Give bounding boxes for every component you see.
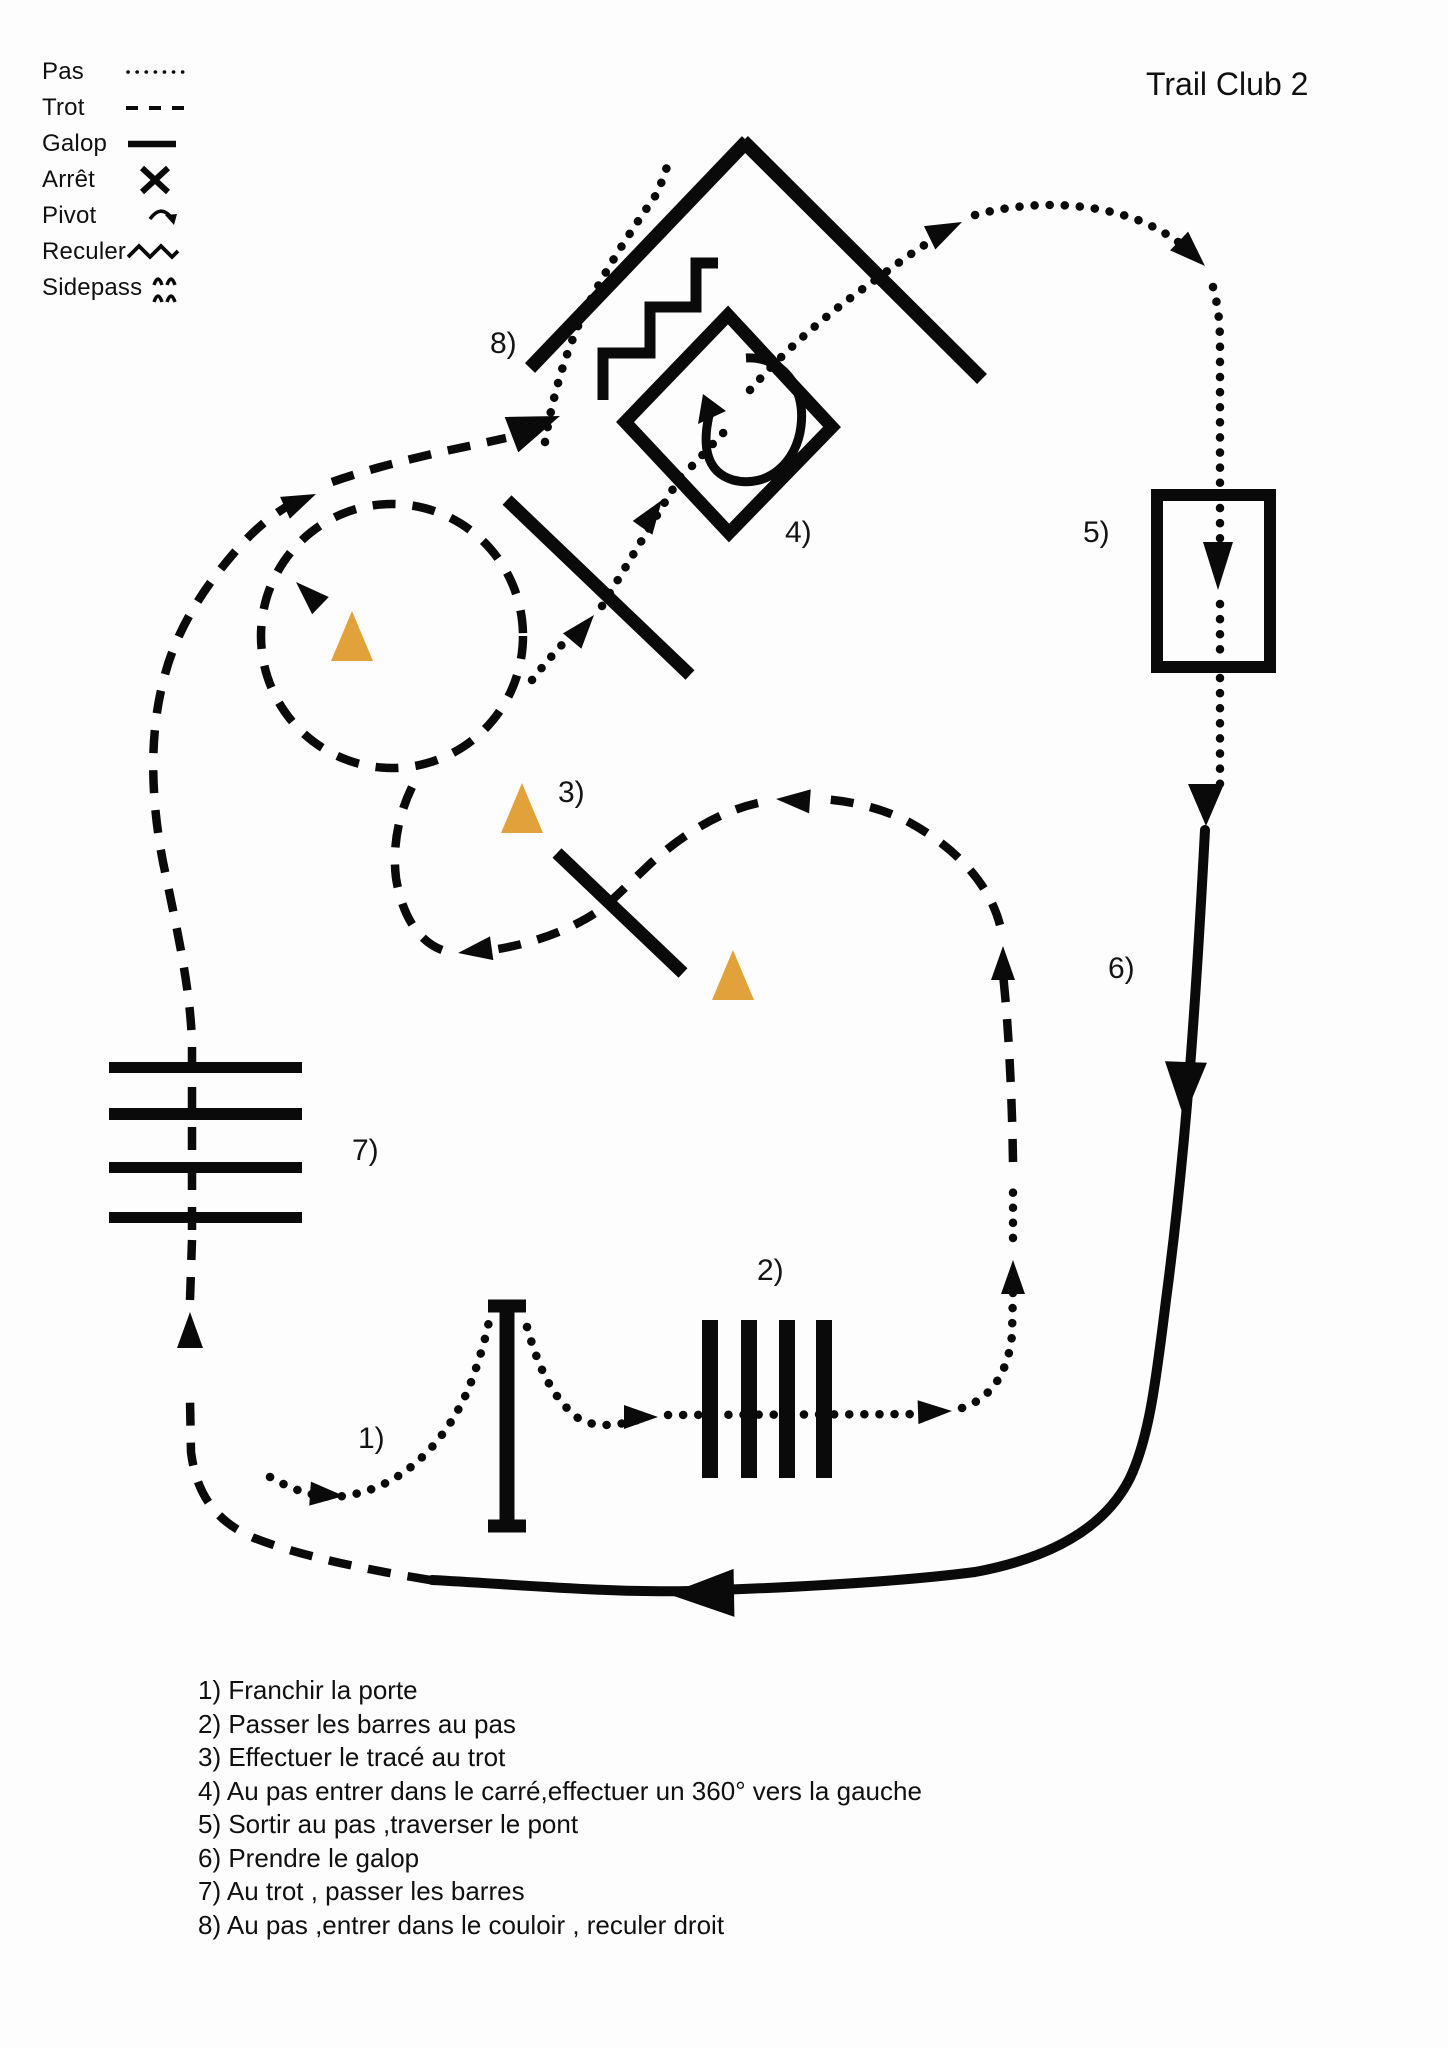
cone-marker [712,950,754,1000]
corridor-right-rail [743,141,982,379]
arrow [309,1482,345,1508]
arrow [918,1399,953,1424]
arrow [775,787,811,813]
pole [109,1162,302,1173]
arrow [563,607,603,648]
arrow [624,1405,658,1429]
diagonal-pole-lower [557,853,683,973]
pole [702,1320,718,1478]
pole [741,1320,757,1478]
cone-marker [501,783,543,833]
arrow [177,1312,203,1348]
arrow [668,1569,735,1618]
trot-path-arc-left [822,799,1000,925]
arrow [1163,1061,1207,1118]
trot-circle [261,504,523,768]
instruction-line-7: 7) Au trot , passer les barres [198,1875,922,1909]
arrow [280,483,321,519]
pole [109,1108,302,1120]
instruction-line-6: 6) Prendre le galop [198,1842,922,1876]
instruction-line-8: 8) Au pas ,entrer dans le couloir , recu… [198,1909,922,1943]
arrow [991,946,1015,980]
walk-path-arc-to-bridge [975,205,1197,258]
arrow [1001,1260,1025,1294]
diagonal-pole-upper [507,500,690,675]
arrow [924,210,968,249]
trot-poles-obstacle [109,1062,302,1223]
trot-path-to-corridor [332,438,506,482]
walk-poles-obstacle [702,1320,832,1478]
obstacle-label-1: 1) [358,1422,385,1455]
pole [109,1212,302,1223]
arrow [1203,542,1233,590]
obstacle-label-3: 3) [558,776,585,809]
walk-path-start-gate [270,1316,490,1497]
obstacle-label-4: 4) [785,516,812,549]
walk-path-to-square-2 [602,474,682,606]
instruction-line-2: 2) Passer les barres au pas [198,1708,922,1742]
obstacle-label-2: 2) [757,1254,784,1287]
trot-path-serpentine-2 [395,783,442,950]
trot-path-left-side [153,499,300,1230]
instruction-line-1: 1) Franchir la porte [198,1674,922,1708]
walk-path-corner-up [962,1288,1013,1408]
obstacle-label-8: 8) [490,327,517,360]
square-obstacle [625,315,832,533]
pole [779,1320,795,1478]
pole [109,1062,302,1073]
walk-paths [270,164,1220,1497]
obstacle-label-5: 5) [1083,516,1110,549]
pivot-360-arrow [706,358,802,482]
gate-obstacle [488,1306,526,1526]
trail-course-sheet: Pas Trot Galop Arrêt [0,0,1448,2048]
instructions-list: 1) Franchir la porte 2) Passer les barre… [198,1674,922,1942]
trot-paths [153,438,1013,1580]
arrow [288,573,329,614]
obstacle-label-7: 7) [352,1134,379,1167]
arrow [1188,784,1224,826]
trot-path-bottom-left [190,1400,430,1580]
cone-marker [331,611,373,661]
trot-path-up-right [1003,974,1013,1162]
instruction-line-3: 3) Effectuer le tracé au trot [198,1741,922,1775]
instruction-line-4: 4) Au pas entrer dans le carré,effectuer… [198,1775,922,1809]
instruction-line-5: 5) Sortir au pas ,traverser le pont [198,1808,922,1842]
pole [816,1320,832,1478]
bridge-obstacle [1157,495,1270,667]
trot-path-before-poles [190,1240,192,1300]
arrow [456,936,493,964]
arrow [505,398,567,452]
obstacle-label-6: 6) [1108,952,1135,985]
walk-path-through-bridge [1213,287,1220,786]
